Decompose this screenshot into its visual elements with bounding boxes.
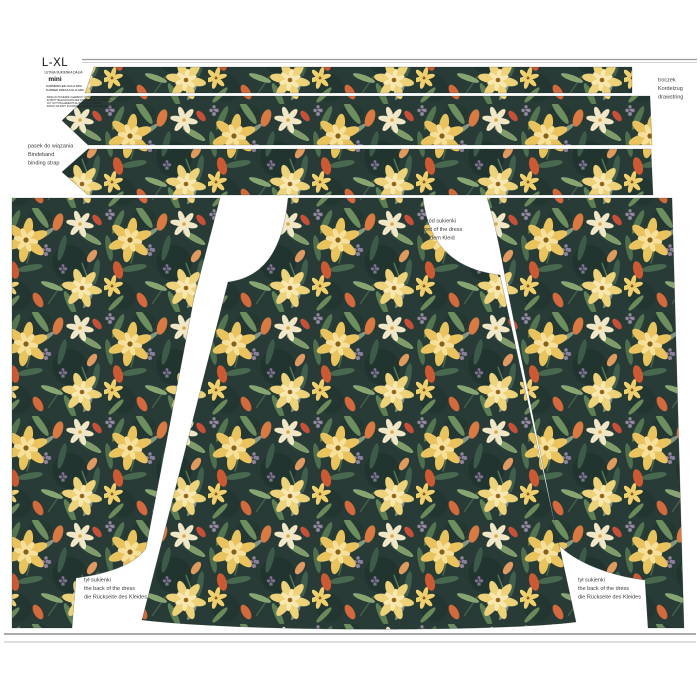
- label-back-piece-left: tył sukienki the back of the dress die R…: [84, 576, 147, 602]
- collection-label: LETNIA SUKIENKA DALIA: [44, 71, 65, 75]
- label-back-piece-right: tył sukienki the back of the dress die R…: [578, 576, 641, 602]
- fabric-panel-sheet: L-XL LETNIA SUKIENKA DALIA mini SOMMERKL…: [0, 0, 700, 700]
- label-line: front of the dress: [421, 226, 462, 235]
- size-label: L-XL: [22, 57, 88, 69]
- subtitle-en: SUMMER DRESS DALIA MINI: [46, 89, 64, 92]
- label-drawstring: troczek Kordelzug drawstring: [658, 76, 683, 102]
- product-name-label: mini: [39, 75, 72, 83]
- strip-binding-2: [62, 149, 653, 195]
- label-line: vor dem Kleid: [421, 234, 462, 243]
- label-line: przód sukienki: [421, 217, 462, 226]
- label-line: troczek: [658, 76, 683, 85]
- label-line: die Rückseite des Kleides: [578, 593, 641, 602]
- strip-binding-1: [62, 96, 652, 145]
- label-line: Kordelzug: [658, 85, 683, 94]
- label-front-piece: przód sukienki front of the dress vor de…: [421, 217, 462, 243]
- info-line: ZAPASY NA SZWY SA DODANE / SEAM ALLOWANC…: [47, 105, 64, 108]
- label-line: tył sukienki: [578, 576, 641, 585]
- label-line: pasek do wiązania: [28, 142, 73, 151]
- label-line: die Rückseite des Kleides: [84, 593, 147, 602]
- label-line: the back of the dress: [84, 585, 147, 594]
- label-line: drawstring: [658, 93, 683, 102]
- label-line: the back of the dress: [578, 585, 641, 594]
- label-line: tył sukienki: [84, 576, 147, 585]
- label-line: binding strap: [28, 159, 73, 168]
- subtitle-de: SOMMERKLEID DALIA MINI: [46, 85, 64, 88]
- strip-drawstring: [85, 67, 632, 93]
- label-binding-strap: pasek do wiązania Bindeband binding stra…: [28, 142, 73, 168]
- label-line: Bindeband: [28, 151, 73, 160]
